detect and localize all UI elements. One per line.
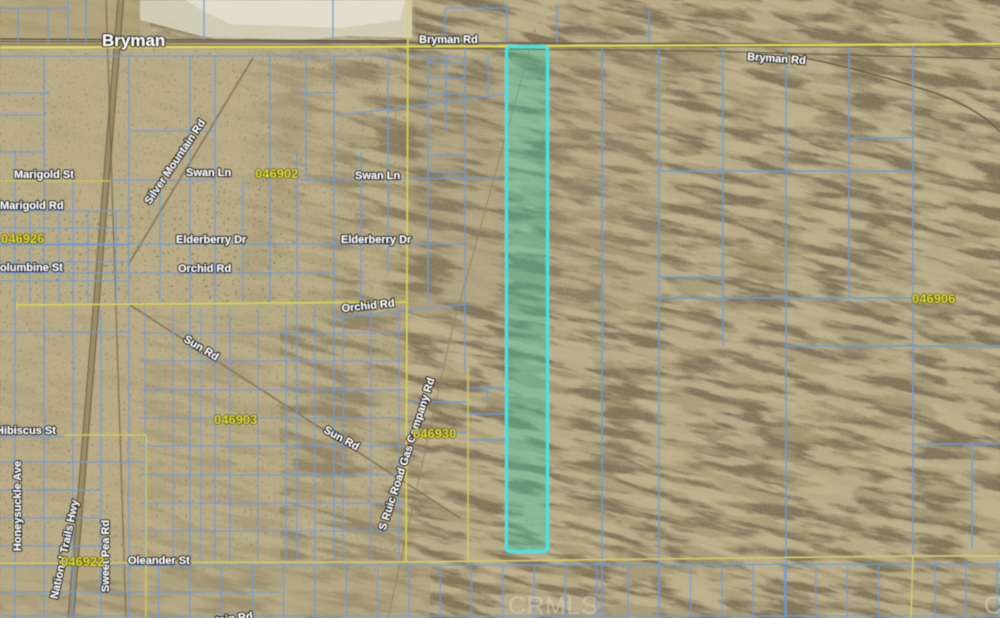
svg-text:Honeysuckle Ave: Honeysuckle Ave bbox=[12, 461, 24, 551]
svg-text:Marigold St: Marigold St bbox=[14, 169, 74, 181]
svg-text:046930: 046930 bbox=[413, 426, 456, 441]
svg-text:Hibiscus St: Hibiscus St bbox=[0, 425, 56, 437]
svg-text:046903: 046903 bbox=[214, 412, 257, 427]
svg-text:046906: 046906 bbox=[912, 291, 955, 306]
svg-text:046926: 046926 bbox=[1, 231, 44, 246]
svg-text:046902: 046902 bbox=[255, 166, 298, 181]
svg-text:Swan Ln: Swan Ln bbox=[186, 167, 232, 179]
svg-text:Bryman Rd: Bryman Rd bbox=[419, 34, 478, 46]
svg-text:Swan Ln: Swan Ln bbox=[355, 170, 401, 182]
svg-text:Orchid Rd: Orchid Rd bbox=[178, 263, 231, 275]
svg-text:Columbine St: Columbine St bbox=[0, 262, 63, 274]
svg-text:CRMLS: CRMLS bbox=[508, 592, 598, 618]
svg-text:C: C bbox=[984, 592, 1000, 618]
svg-text:Elderberry Dr: Elderberry Dr bbox=[176, 234, 247, 246]
svg-text:Marigold Rd: Marigold Rd bbox=[0, 200, 64, 212]
svg-text:046922: 046922 bbox=[61, 554, 104, 569]
svg-text:Bryman: Bryman bbox=[102, 31, 165, 50]
svg-text:Elderberry Dr: Elderberry Dr bbox=[341, 234, 412, 246]
svg-text:Oleander St: Oleander St bbox=[128, 555, 190, 567]
